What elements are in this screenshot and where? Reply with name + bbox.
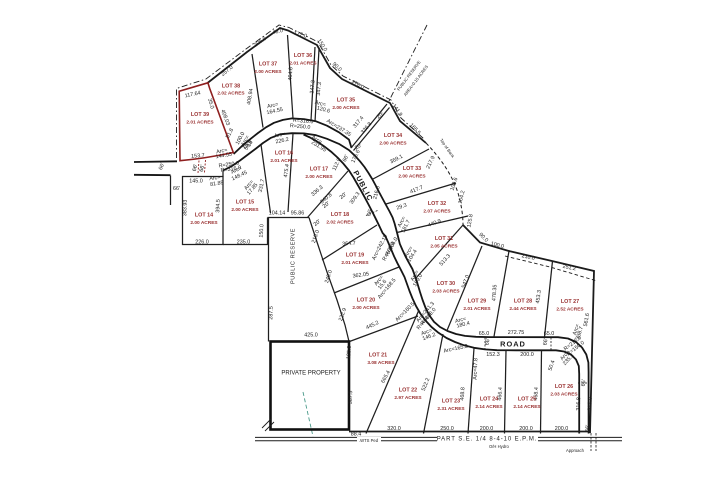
svg-text:LOT 16: LOT 16 [275, 151, 293, 157]
svg-text:2.02 ACRES: 2.02 ACRES [326, 220, 354, 226]
svg-text:316.8: 316.8 [576, 397, 582, 411]
svg-text:2.03 ACRES: 2.03 ACRES [550, 392, 578, 398]
svg-text:200.0: 200.0 [519, 426, 533, 432]
svg-text:LOT 17: LOT 17 [310, 167, 328, 173]
svg-text:200.0: 200.0 [520, 352, 534, 358]
svg-text:2.52 ACRES: 2.52 ACRES [556, 307, 584, 313]
svg-text:65.0: 65.0 [544, 331, 555, 337]
svg-text:150.0: 150.0 [259, 224, 266, 238]
svg-text:383.93: 383.93 [182, 200, 189, 217]
svg-text:2.01 ACRES: 2.01 ACRES [341, 260, 369, 266]
svg-text:LOT 37: LOT 37 [259, 62, 277, 68]
svg-text:2.00 ACRES: 2.00 ACRES [352, 305, 380, 311]
svg-text:2.02 ACRES: 2.02 ACRES [217, 91, 245, 97]
svg-text:LOT 36: LOT 36 [294, 53, 312, 59]
svg-text:200.0: 200.0 [480, 426, 494, 432]
svg-text:394.5: 394.5 [215, 199, 221, 213]
svg-text:2.97 ACRES: 2.97 ACRES [394, 395, 422, 401]
svg-text:LOT 23: LOT 23 [442, 399, 460, 405]
svg-text:104.14: 104.14 [269, 211, 286, 217]
svg-text:2.14 ACRES: 2.14 ACRES [475, 404, 503, 410]
svg-text:152.3: 152.3 [486, 352, 500, 358]
svg-text:2.07 ACRES: 2.07 ACRES [423, 209, 451, 215]
svg-text:LOT 15: LOT 15 [236, 200, 254, 206]
svg-text:2.00 ACRES: 2.00 ACRES [254, 69, 282, 75]
svg-text:Approach: Approach [566, 448, 585, 453]
svg-text:LOT 38: LOT 38 [222, 84, 240, 90]
svg-text:2.03 ACRES: 2.03 ACRES [432, 289, 460, 295]
svg-text:PRIVATE PROPERTY: PRIVATE PROPERTY [281, 371, 340, 377]
svg-text:2.01 ACRES: 2.01 ACRES [289, 61, 317, 67]
svg-text:ROAD: ROAD [500, 340, 526, 349]
svg-text:LOT 33: LOT 33 [403, 166, 421, 172]
svg-text:387.5: 387.5 [348, 391, 354, 405]
svg-text:468.8: 468.8 [460, 387, 467, 401]
svg-text:LOT 31: LOT 31 [435, 236, 453, 242]
svg-text:2.00 ACRES: 2.00 ACRES [332, 105, 360, 111]
svg-text:200.0: 200.0 [555, 426, 569, 432]
svg-text:464.6: 464.6 [288, 67, 295, 81]
svg-text:250.0: 250.0 [440, 426, 454, 432]
svg-text:66': 66' [542, 338, 549, 346]
svg-text:.WTS Ped: .WTS Ped [359, 438, 379, 443]
svg-text:LOT 21: LOT 21 [369, 353, 387, 359]
svg-text:66': 66' [581, 379, 588, 387]
svg-text:PART S.E. 1/4 8-4-10 E.P.M.: PART S.E. 1/4 8-4-10 E.P.M. [437, 437, 538, 443]
svg-text:LOT 14: LOT 14 [195, 213, 213, 219]
svg-text:235.0: 235.0 [237, 239, 251, 245]
svg-text:LOT 39: LOT 39 [191, 112, 209, 118]
svg-text:O/H Hydro: O/H Hydro [489, 444, 509, 449]
svg-text:LOT 19: LOT 19 [346, 253, 364, 259]
svg-text:LOT 35: LOT 35 [337, 98, 355, 104]
svg-text:LOT 32: LOT 32 [428, 201, 446, 207]
svg-text:145.0: 145.0 [189, 179, 203, 185]
svg-text:2.00 ACRES: 2.00 ACRES [379, 141, 407, 147]
svg-text:LOT 30: LOT 30 [437, 281, 455, 287]
svg-text:317.0: 317.0 [587, 397, 593, 411]
svg-text:2.01 ACRES: 2.01 ACRES [270, 158, 298, 164]
svg-text:2.01 ACRES: 2.01 ACRES [186, 120, 214, 126]
svg-text:LOT 22: LOT 22 [399, 388, 417, 394]
svg-text:320.0: 320.0 [387, 426, 401, 432]
svg-text:Arc=47.8: Arc=47.8 [473, 358, 480, 380]
svg-text:2.31 ACRES: 2.31 ACRES [437, 406, 465, 412]
svg-text:LOT 24: LOT 24 [480, 397, 498, 403]
svg-text:66': 66' [173, 186, 180, 192]
svg-text:LOT 29: LOT 29 [468, 298, 486, 304]
svg-text:2.00 ACRES: 2.00 ACRES [231, 207, 259, 213]
svg-text:3.08 ACRES: 3.08 ACRES [367, 360, 395, 366]
svg-text:153.7: 153.7 [191, 153, 205, 160]
svg-text:2.05 ACRES: 2.05 ACRES [430, 244, 458, 250]
svg-text:287.5: 287.5 [268, 306, 274, 320]
svg-text:LOT 28: LOT 28 [514, 298, 532, 304]
svg-text:2.00 ACRES: 2.00 ACRES [398, 174, 426, 180]
svg-text:2.44 ACRES: 2.44 ACRES [509, 306, 537, 312]
svg-text:2.14 ACRES: 2.14 ACRES [513, 404, 541, 410]
svg-text:LOT 18: LOT 18 [331, 212, 349, 218]
svg-text:2.01 ACRES: 2.01 ACRES [463, 306, 491, 312]
svg-text:66': 66' [585, 425, 592, 433]
svg-text:272.75: 272.75 [508, 330, 525, 336]
svg-text:478.35: 478.35 [491, 284, 498, 301]
svg-text:88.4: 88.4 [351, 432, 362, 438]
svg-text:425.0: 425.0 [304, 333, 318, 339]
svg-text:2.00 ACRES: 2.00 ACRES [305, 174, 333, 180]
svg-text:LOT 27: LOT 27 [561, 299, 579, 305]
svg-text:226.0: 226.0 [195, 239, 209, 245]
svg-text:PUBLIC RESERVE: PUBLIC RESERVE [291, 228, 297, 284]
svg-text:2.00 ACRES: 2.00 ACRES [190, 220, 218, 226]
svg-text:LOT 25: LOT 25 [518, 397, 536, 403]
svg-text:LOT 34: LOT 34 [384, 133, 402, 139]
svg-text:347.3: 347.3 [316, 82, 323, 96]
svg-text:95.86: 95.86 [291, 211, 305, 217]
svg-text:65.0: 65.0 [479, 331, 490, 337]
svg-text:364.7: 364.7 [342, 241, 356, 248]
svg-text:125.0: 125.0 [346, 345, 353, 359]
svg-text:LOT 26: LOT 26 [555, 384, 573, 390]
svg-text:66': 66' [484, 338, 491, 346]
svg-text:LOT 20: LOT 20 [357, 298, 375, 304]
